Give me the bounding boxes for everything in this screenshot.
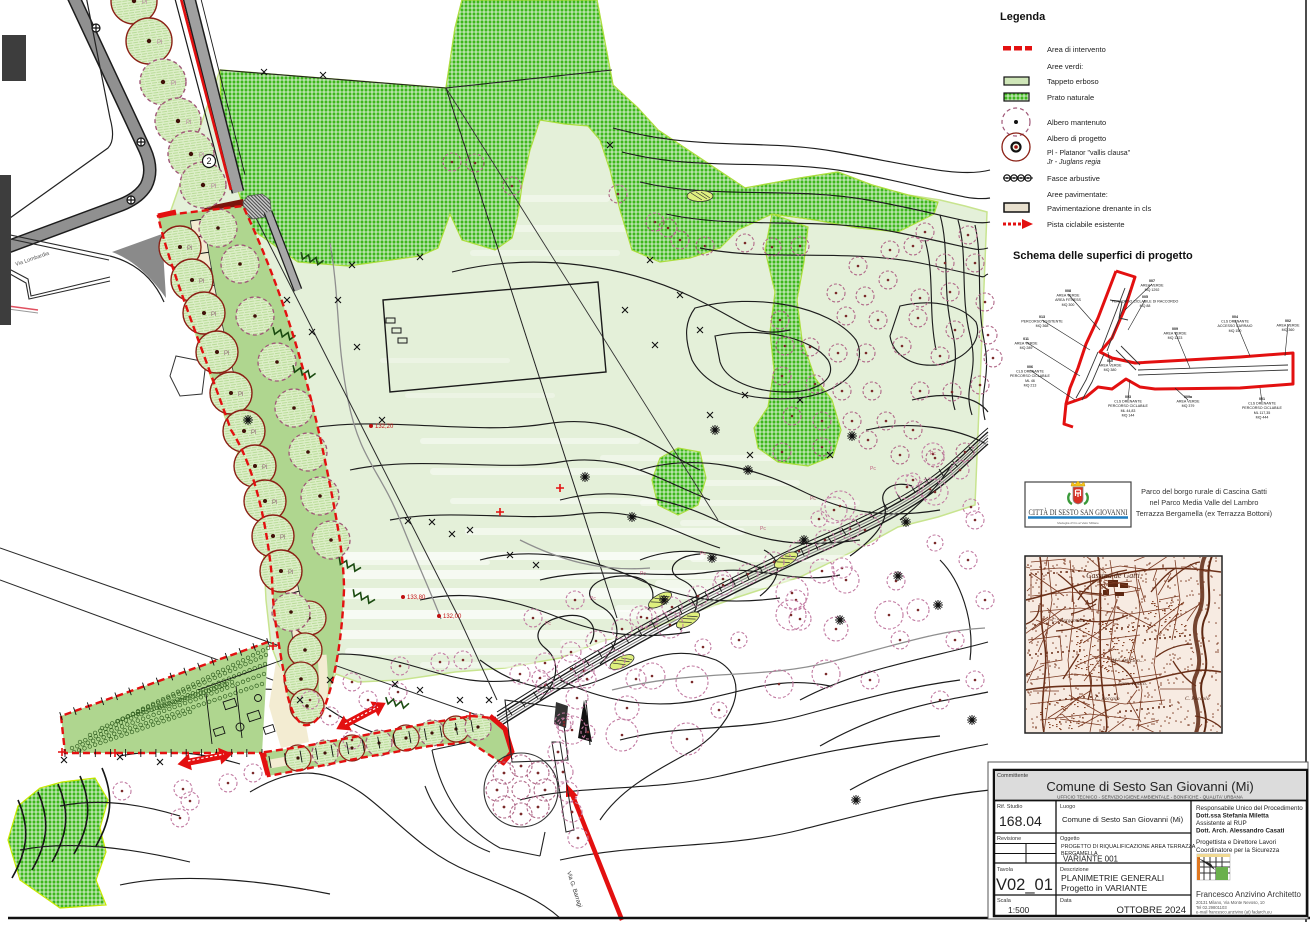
svg-text:Pc: Pc <box>590 596 596 602</box>
svg-text:MQ 88: MQ 88 <box>1140 304 1151 308</box>
svg-text:Via Lombardia: Via Lombardia <box>15 250 51 267</box>
svg-text:005: 005 <box>1142 295 1148 299</box>
svg-text:AREA VERDE: AREA VERDE <box>1141 284 1165 288</box>
svg-text:Pl: Pl <box>288 570 293 576</box>
svg-text:Medaglia d'Oro al Valor Milita: Medaglia d'Oro al Valor Militare <box>1057 521 1099 525</box>
svg-text:Rif. Studio: Rif. Studio <box>997 804 1022 810</box>
svg-text:001: 001 <box>1259 397 1265 401</box>
svg-text:Revisione: Revisione <box>997 836 1021 842</box>
svg-text:Data: Data <box>1060 898 1073 904</box>
svg-text:PLANIMETRIE GENERALI: PLANIMETRIE GENERALI <box>1061 873 1164 883</box>
svg-text:MQ 360: MQ 360 <box>1282 328 1295 332</box>
svg-text:AREA VERDE: AREA VERDE <box>1057 294 1081 298</box>
svg-text:CLS DRENANTE: CLS DRENANTE <box>1221 320 1249 324</box>
svg-text:Luogo: Luogo <box>1060 804 1075 810</box>
svg-text:MQ 379: MQ 379 <box>1182 404 1195 408</box>
svg-text:Pl: Pl <box>251 430 256 436</box>
svg-text:Comune di Sesto San Giovanni (: Comune di Sesto San Giovanni (Mi) <box>1046 779 1253 794</box>
svg-text:MQ 300: MQ 300 <box>1062 303 1075 307</box>
svg-text:Pl: Pl <box>238 392 243 398</box>
svg-text:PERCORSO CICLABILE: PERCORSO CICLABILE <box>1108 404 1149 408</box>
svg-text:Pl: Pl <box>224 351 229 357</box>
svg-text:C. Roccolo: C. Roccolo <box>1095 696 1120 702</box>
svg-text:Pl: Pl <box>171 81 176 87</box>
svg-text:Pl: Pl <box>280 535 285 541</box>
svg-text:CLS DRENANTE: CLS DRENANTE <box>1016 370 1044 374</box>
svg-text:PERCORSO ESISTENTE: PERCORSO ESISTENTE <box>1021 320 1063 324</box>
svg-text:133,80: 133,80 <box>407 595 426 601</box>
svg-text:009: 009 <box>1172 327 1178 331</box>
svg-text:M.° del Lion...: M.° del Lion... <box>1111 657 1144 664</box>
svg-text:MQ 368: MQ 368 <box>1036 324 1049 328</box>
svg-text:Progettista e Direttore Lavori: Progettista e Direttore Lavori <box>1196 839 1276 846</box>
svg-text:C. Roccolo: C. Roccolo <box>1185 696 1210 702</box>
svg-text:Schema delle superfici di prog: Schema delle superfici di progetto <box>1013 250 1193 262</box>
svg-text:Scala: Scala <box>997 898 1012 904</box>
svg-text:OTTOBRE 2024: OTTOBRE 2024 <box>1116 905 1186 916</box>
svg-text:Pc: Pc <box>640 571 646 577</box>
svg-text:Pl - Platanor "vallis clausa": Pl - Platanor "vallis clausa" <box>1047 150 1131 157</box>
svg-text:Pl: Pl <box>199 279 204 285</box>
svg-text:MQ 213: MQ 213 <box>1024 383 1037 387</box>
svg-text:AREA VERDE: AREA VERDE <box>1277 324 1301 328</box>
svg-text:Pc: Pc <box>870 466 876 472</box>
svg-text:V02_01: V02_01 <box>996 876 1053 894</box>
svg-text:132,20: 132,20 <box>375 424 394 430</box>
svg-text:Pavimentazione drenante in cls: Pavimentazione drenante in cls <box>1047 204 1151 213</box>
svg-text:MQ 289: MQ 289 <box>1020 346 1033 350</box>
svg-text:CLS DRENANTE: CLS DRENANTE <box>1114 400 1142 404</box>
svg-text:Pl: Pl <box>272 500 277 506</box>
svg-text:ML 44,83: ML 44,83 <box>1121 409 1136 413</box>
svg-text:Progetto in VARIANTE: Progetto in VARIANTE <box>1061 883 1148 893</box>
svg-text:C.ª Bergamina: C.ª Bergamina <box>1052 618 1084 624</box>
svg-text:PERCORSO CICLABILE: PERCORSO CICLABILE <box>1010 374 1051 378</box>
svg-text:Prato naturale: Prato naturale <box>1047 93 1094 102</box>
svg-text:MQ 1292: MQ 1292 <box>1145 288 1160 292</box>
svg-text:Area di intervento: Area di intervento <box>1047 45 1106 54</box>
svg-text:003: 003 <box>1125 395 1131 399</box>
svg-text:Pl: Pl <box>142 0 147 6</box>
svg-text:Pl: Pl <box>211 312 216 318</box>
svg-text:PERCORSO CICLABILE DI RACCORDO: PERCORSO CICLABILE DI RACCORDO <box>1112 300 1179 304</box>
svg-text:009a: 009a <box>1184 395 1193 399</box>
svg-text:Tavola: Tavola <box>997 867 1014 873</box>
svg-text:1:500: 1:500 <box>1008 905 1030 915</box>
svg-text:Pl: Pl <box>262 465 267 471</box>
svg-text:004: 004 <box>1232 315 1238 319</box>
svg-text:Pc: Pc <box>760 526 766 532</box>
svg-text:AREA VERDE: AREA VERDE <box>1015 342 1039 346</box>
svg-text:CLS DRENANTE: CLS DRENANTE <box>1248 402 1276 406</box>
svg-text:Parco del borgo rurale di Casc: Parco del borgo rurale di Cascina Gatti <box>1141 487 1267 496</box>
svg-text:ML 46: ML 46 <box>1025 379 1035 383</box>
svg-text:Legenda: Legenda <box>1000 11 1046 23</box>
svg-text:AREA VERDE: AREA VERDE <box>1099 364 1123 368</box>
svg-text:Pl: Pl <box>157 40 162 46</box>
svg-text:MQ 150: MQ 150 <box>1229 329 1242 333</box>
svg-text:MQ 1223: MQ 1223 <box>1168 336 1183 340</box>
svg-text:Committente: Committente <box>997 773 1028 779</box>
svg-text:Responsabile Unico del Procedi: Responsabile Unico del Procedimento <box>1196 805 1303 812</box>
svg-text:Oggetto: Oggetto <box>1060 836 1080 842</box>
svg-text:nel Parco Media Valle del Lamb: nel Parco Media Valle del Lambro <box>1150 498 1259 507</box>
svg-text:Pista ciclabile esistente: Pista ciclabile esistente <box>1047 220 1125 229</box>
svg-text:Fasce arbustive: Fasce arbustive <box>1047 174 1100 183</box>
svg-text:Comune di Sesto San Giovanni (: Comune di Sesto San Giovanni (Mi) <box>1062 815 1184 824</box>
svg-text:CITTÀ DI SESTO SAN GIOVANNI: CITTÀ DI SESTO SAN GIOVANNI <box>1029 507 1128 517</box>
svg-text:Terrazza Bergamella (ex Terraz: Terrazza Bergamella (ex Terrazza Bottoni… <box>1136 509 1272 518</box>
svg-text:010: 010 <box>1107 359 1113 363</box>
svg-text:Pl: Pl <box>211 184 216 190</box>
svg-text:Pl: Pl <box>186 120 191 126</box>
svg-text:e-mail francesco.anzivino (at): e-mail francesco.anzivino (at) fadarch.e… <box>1196 910 1272 915</box>
svg-text:MQ 380: MQ 380 <box>1104 368 1117 372</box>
svg-text:Cassina de Gatti: Cassina de Gatti <box>1086 571 1140 580</box>
svg-text:Aree verdi:: Aree verdi: <box>1047 62 1083 71</box>
svg-text:PROGETTO DI RIQUALIFICAZIONE: PROGETTO DI RIQUALIFICAZIONE AREA TERRAZ… <box>1061 844 1196 850</box>
svg-text:Via G. Barragi: Via G. Barragi <box>565 871 582 909</box>
svg-text:Coordinatore per la Sicurezza: Coordinatore per la Sicurezza <box>1196 847 1280 854</box>
svg-text:006: 006 <box>1027 365 1033 369</box>
svg-text:AREA VERDE: AREA VERDE <box>1164 332 1188 336</box>
svg-text:UFFICIO TECNICO - SERVIZIO IGI: UFFICIO TECNICO - SERVIZIO IGIENE AMBIEN… <box>1057 795 1244 800</box>
svg-text:Pc: Pc <box>810 496 816 502</box>
svg-text:Albero di progetto: Albero di progetto <box>1047 134 1106 143</box>
svg-text:Assistente al RUP: Assistente al RUP <box>1196 820 1247 827</box>
svg-text:VARIANTE 001: VARIANTE 001 <box>1063 855 1119 864</box>
svg-text:Albero mantenuto: Albero mantenuto <box>1047 118 1106 127</box>
svg-text:AREA VERDE: AREA VERDE <box>1177 400 1201 404</box>
svg-text:013: 013 <box>1039 315 1045 319</box>
svg-text:Forn. Ronch.: Forn. Ronch. <box>1117 681 1147 687</box>
svg-text:PERCORSO CICLABILE: PERCORSO CICLABILE <box>1242 406 1283 410</box>
svg-text:007: 007 <box>1149 279 1155 283</box>
svg-text:Pl: Pl <box>187 246 192 252</box>
svg-text:2: 2 <box>206 156 211 166</box>
svg-text:MQ 444: MQ 444 <box>1256 415 1269 419</box>
svg-text:Jr - Juglans regia: Jr - Juglans regia <box>1046 159 1101 166</box>
svg-text:Dott. Arch. Alessandro Casati: Dott. Arch. Alessandro Casati <box>1196 828 1285 835</box>
svg-text:Pc: Pc <box>930 451 936 457</box>
svg-text:Tappeto erboso: Tappeto erboso <box>1047 77 1099 86</box>
svg-text:AREA FITNESS: AREA FITNESS <box>1055 298 1081 302</box>
svg-text:ACCESSO CARRAIO: ACCESSO CARRAIO <box>1218 324 1253 328</box>
svg-text:Francesco Anzivino Architetto: Francesco Anzivino Architetto <box>1196 890 1301 899</box>
svg-text:MQ 144: MQ 144 <box>1122 413 1135 417</box>
svg-text:002: 002 <box>1285 319 1291 323</box>
svg-text:Dott.ssa Stefania Miletta: Dott.ssa Stefania Miletta <box>1196 813 1269 820</box>
svg-text:Pc: Pc <box>545 621 551 627</box>
svg-text:011: 011 <box>1023 337 1029 341</box>
svg-text:132,00: 132,00 <box>443 614 462 620</box>
svg-text:Aree pavimentate:: Aree pavimentate: <box>1047 190 1108 199</box>
svg-text:Pc: Pc <box>700 551 706 557</box>
svg-text:168.04: 168.04 <box>999 813 1042 829</box>
svg-text:008: 008 <box>1065 289 1071 293</box>
svg-text:ML 117,35: ML 117,35 <box>1254 411 1271 415</box>
